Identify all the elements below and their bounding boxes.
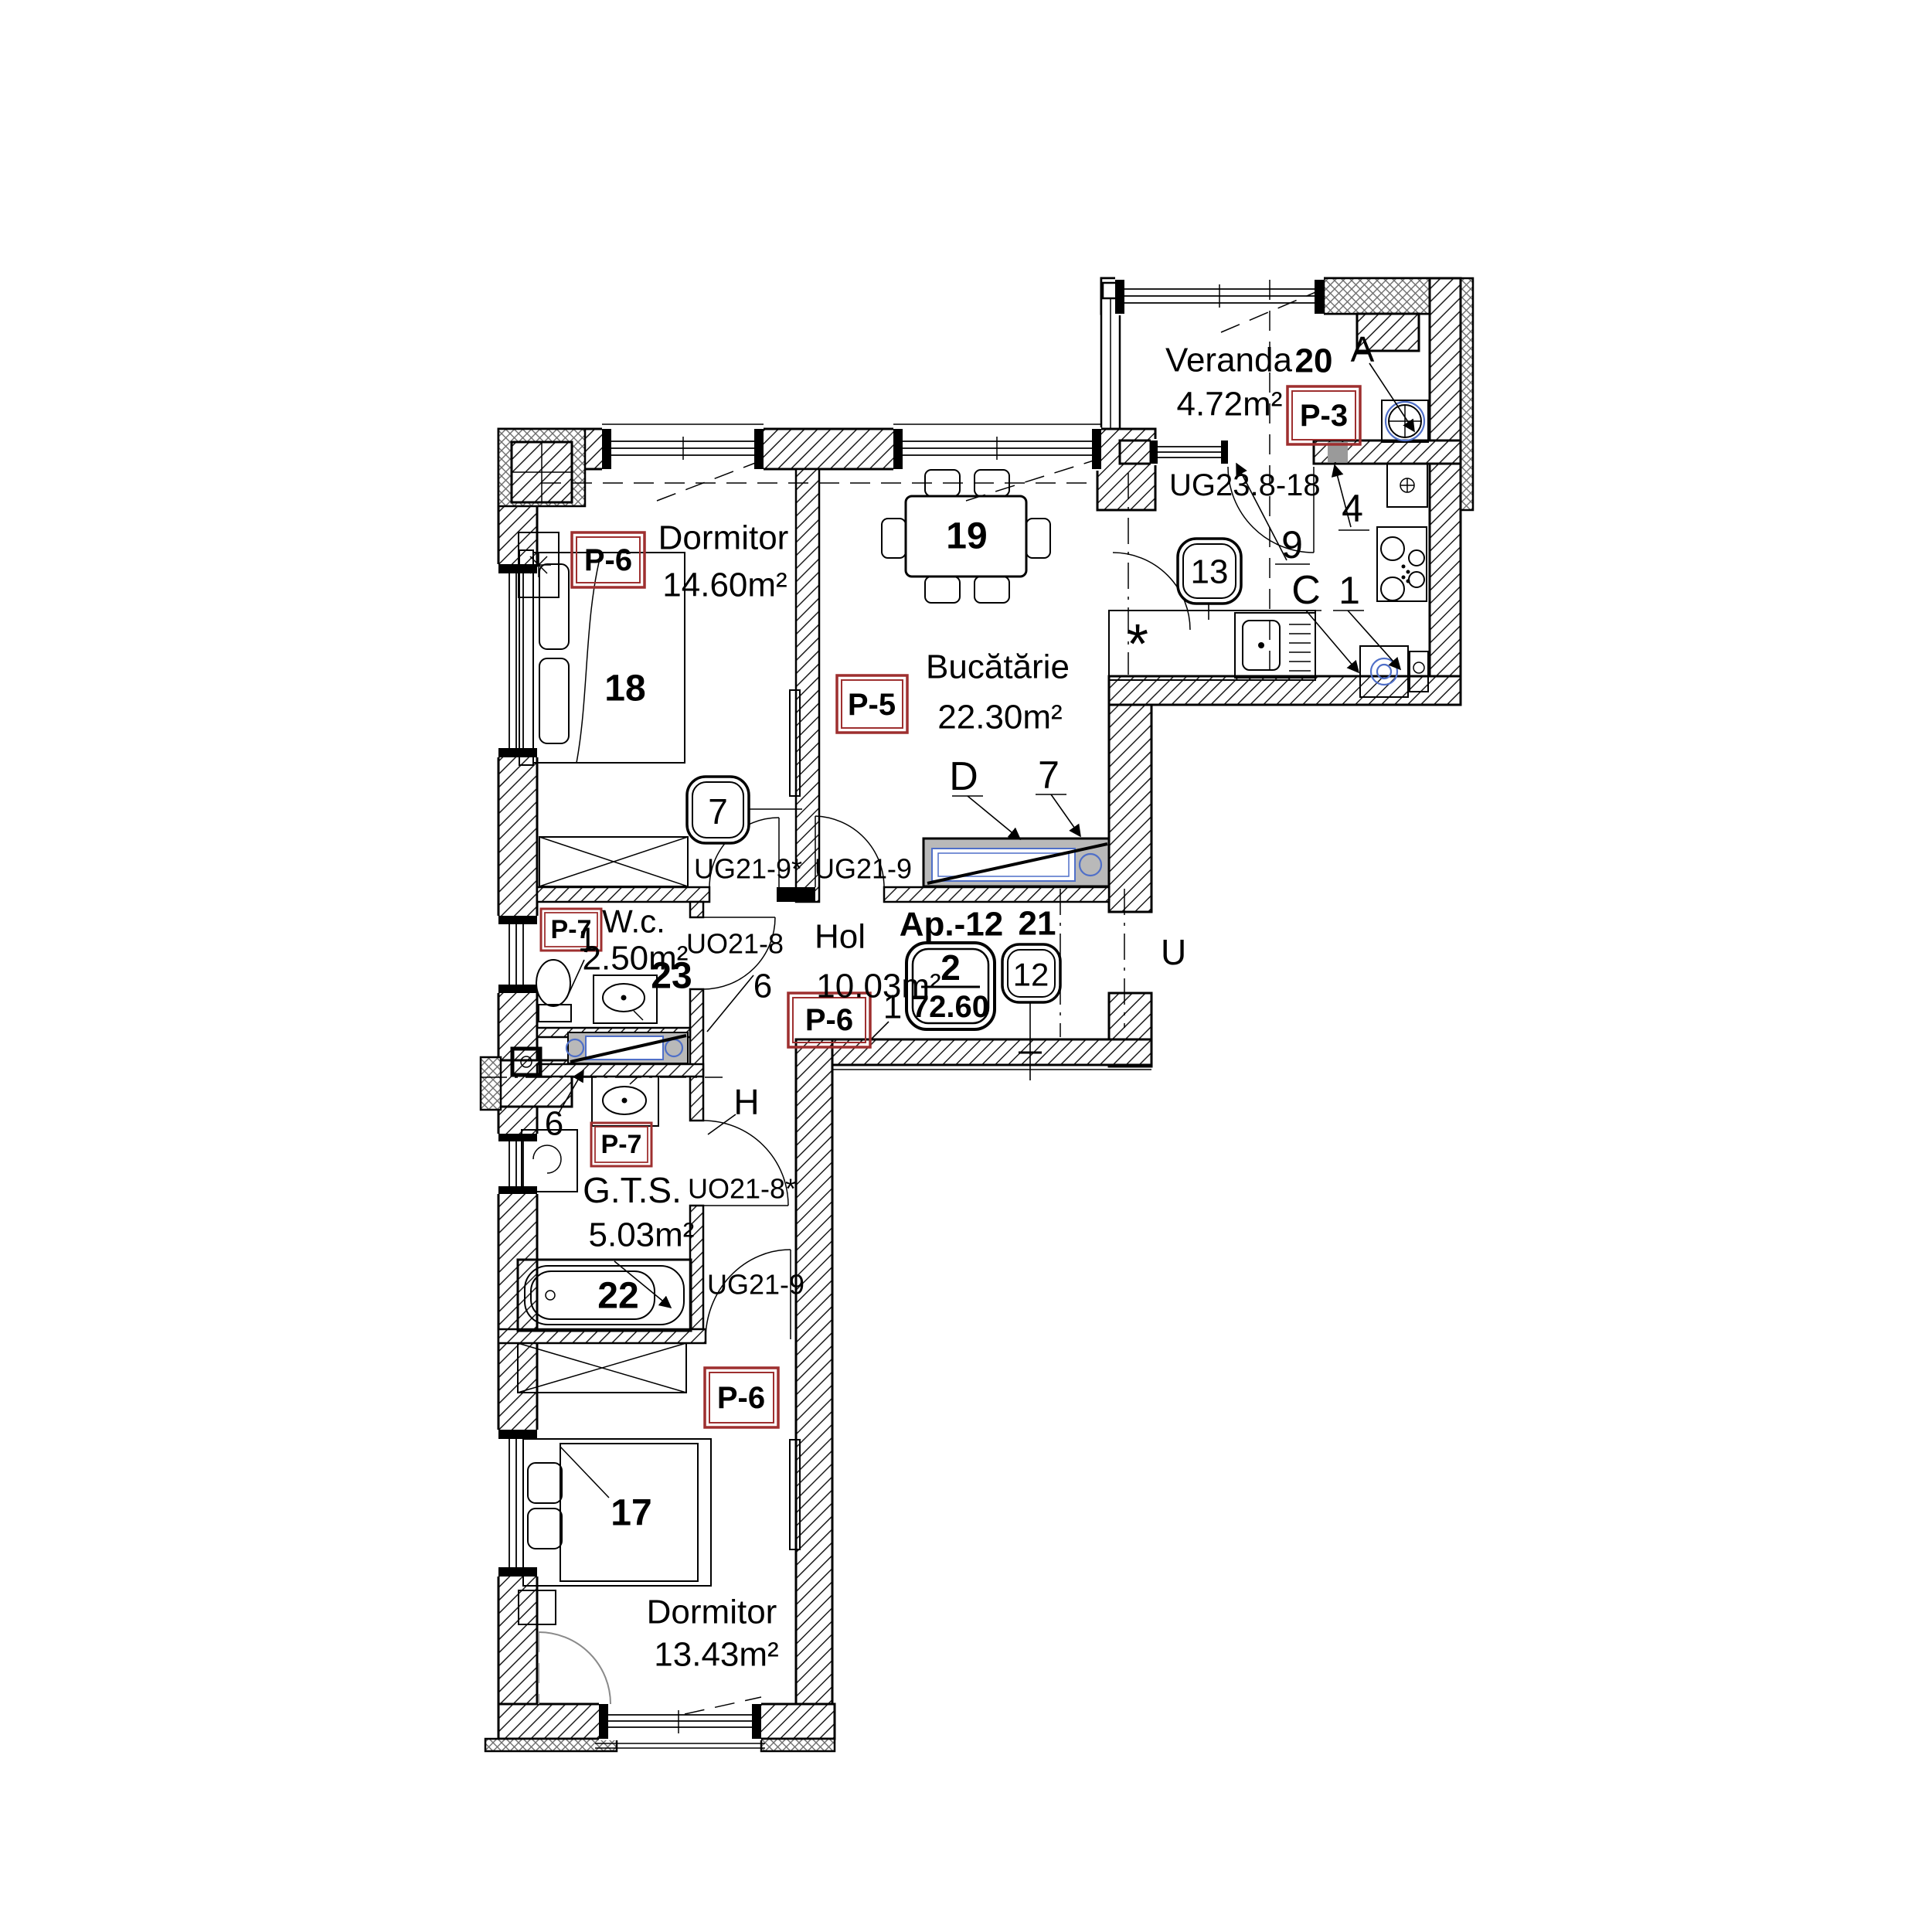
finish-code-gts: P-7 <box>601 1130 642 1159</box>
badge-13-number: 13 <box>1191 553 1229 591</box>
room-name-veranda: Veranda <box>1165 342 1292 379</box>
bed18-pillow-a <box>539 564 569 649</box>
boiler-asterisk: * <box>1127 614 1148 675</box>
hob <box>1377 527 1427 601</box>
room-number-veranda: 20 <box>1295 342 1333 380</box>
leader-7-counter <box>1051 794 1080 836</box>
corner-fan-sink <box>1382 400 1428 442</box>
wardrobe-dorm17 <box>518 1343 686 1393</box>
wall-wc-corridor-a <box>690 902 703 917</box>
furniture-number-19: 19 <box>946 516 987 557</box>
room-area-dorm18: 14.60m² <box>662 566 787 604</box>
finish-box-p6-dorm18: P-6 <box>572 532 645 587</box>
furniture-number-18: 18 <box>604 668 645 709</box>
position-label-21: 21 <box>1019 905 1056 943</box>
fixture-number-23: 23 <box>651 956 692 997</box>
leader-d <box>968 796 1020 839</box>
finish-box-p6-dorm17: P-6 <box>705 1368 778 1427</box>
room-name-bucatarie: Bucătărie <box>926 648 1070 686</box>
wc-sink <box>594 975 657 1023</box>
door-code-gts: UO21-8* <box>688 1173 796 1205</box>
wall-wc-corridor-b <box>690 989 703 1121</box>
door-code-dorm17: UG21-9 <box>707 1269 804 1301</box>
finish-code-hol: P-6 <box>805 1003 853 1037</box>
window-dorm17-bottom <box>595 1702 765 1748</box>
wall-cabinet <box>1387 464 1427 507</box>
toilet-bowl <box>536 960 570 1006</box>
room-name-gts: G.T.S. <box>583 1170 682 1210</box>
marker-a: A <box>1351 329 1375 369</box>
marker-d: D <box>949 754 978 799</box>
wall-duct-bottom <box>537 1064 703 1077</box>
badge-12: 12 <box>1002 944 1060 1002</box>
wall-lower-right <box>796 1039 832 1739</box>
finish-box-p5: P-5 <box>837 675 907 733</box>
door-code-bucatarie: UG21-9 <box>815 853 912 885</box>
door-code-wc: UO21-8 <box>686 928 784 960</box>
marker-h: H <box>733 1082 759 1122</box>
room-name-dorm17: Dormitor <box>647 1594 777 1631</box>
finish-code-dorm18: P-6 <box>584 543 632 577</box>
badge-door7-number: 7 <box>708 791 728 832</box>
leader-1-kitchen <box>1348 611 1400 669</box>
room-area-hol: 10.03m² <box>816 968 940 1005</box>
badge-13: 13 <box>1178 539 1241 604</box>
bed18-blanket-fold <box>577 553 601 763</box>
marker-1-kitchen: 1 <box>1338 569 1360 612</box>
gts-sink <box>592 1076 658 1126</box>
window-veranda-top <box>1115 277 1324 315</box>
furniture-number-17: 17 <box>611 1493 651 1534</box>
finish-box-p3: P-3 <box>1287 386 1360 444</box>
chair-right <box>1026 519 1050 558</box>
marker-6-hol: 6 <box>753 968 772 1005</box>
room-name-dorm18: Dormitor <box>658 519 789 557</box>
window-gts-left <box>497 1134 539 1194</box>
wall-bottom-insul-a <box>485 1739 617 1751</box>
door-code-edge-partial: U <box>1161 932 1186 972</box>
marker-1-hol: 1 <box>883 988 902 1026</box>
badge-door7: 7 <box>687 777 749 843</box>
wall-hol-right-a <box>1109 705 1151 912</box>
wall-veranda-bottom-a <box>1120 440 1151 464</box>
leader-h <box>708 1114 736 1134</box>
room-area-bucatarie: 22.30m² <box>937 699 1062 736</box>
wall-mid-b <box>884 887 1109 902</box>
room-name-hol: Hol <box>815 918 866 956</box>
door-balcony-dorm17 <box>539 1632 611 1704</box>
window-wc-left <box>497 916 539 993</box>
marker-9: 9 <box>1281 523 1303 566</box>
wall-mid-pillar <box>777 887 815 902</box>
room-area-dorm17: 13.43m² <box>654 1636 778 1674</box>
marker-c: C <box>1291 568 1321 613</box>
window-bucatarie-top <box>893 424 1101 471</box>
marker-7-counter: 7 <box>1038 753 1060 797</box>
door-code-veranda-kitchen: UG23.8-18 <box>1169 468 1321 502</box>
floor-plan-canvas: * <box>0 0 1932 1932</box>
wall-step-insul <box>481 1057 501 1110</box>
kitchen-sink <box>1235 613 1315 678</box>
chair-bottom-2 <box>975 577 1009 603</box>
fixture-number-22: 22 <box>597 1276 638 1317</box>
leader-c <box>1306 611 1359 672</box>
wardrobe-dorm18 <box>539 837 688 886</box>
bed18-pillow-b <box>539 658 569 743</box>
finish-box-p7-gts: P-7 <box>591 1123 651 1166</box>
room-area-veranda: 4.72m² <box>1177 386 1283 423</box>
door-code-dorm18: UG21-9* <box>694 853 802 885</box>
room-area-gts: 5.03m² <box>589 1216 695 1254</box>
finish-code-bucatarie: P-5 <box>848 688 896 722</box>
wall-right-upper <box>1430 278 1461 705</box>
marker-4: 4 <box>1342 487 1363 530</box>
room-name-wc: W.c. <box>602 903 665 940</box>
marker-6-gts: 6 <box>545 1105 563 1143</box>
window-dorm18-top <box>602 424 764 471</box>
toilet-tank <box>539 1005 571 1022</box>
wall-veranda-outer-strip <box>1461 278 1473 510</box>
finish-code-dorm17: P-6 <box>717 1381 765 1415</box>
bed17-blanket-fold <box>560 1447 609 1498</box>
finish-code-veranda: P-3 <box>1300 399 1348 433</box>
wall-bottom-insul-b <box>761 1739 835 1751</box>
marker-1-wc: 1 <box>578 921 597 959</box>
apartment-label: Ap.-12 <box>900 906 1003 944</box>
counter-d7 <box>923 838 1109 886</box>
window-veranda-bottom <box>1151 439 1228 465</box>
chair-bottom-1 <box>925 577 960 603</box>
badge-apartment-level: 2 <box>940 947 961 988</box>
wall-mid-a <box>537 887 709 902</box>
badge-12-number: 12 <box>1013 957 1049 993</box>
chair-left <box>882 519 906 558</box>
